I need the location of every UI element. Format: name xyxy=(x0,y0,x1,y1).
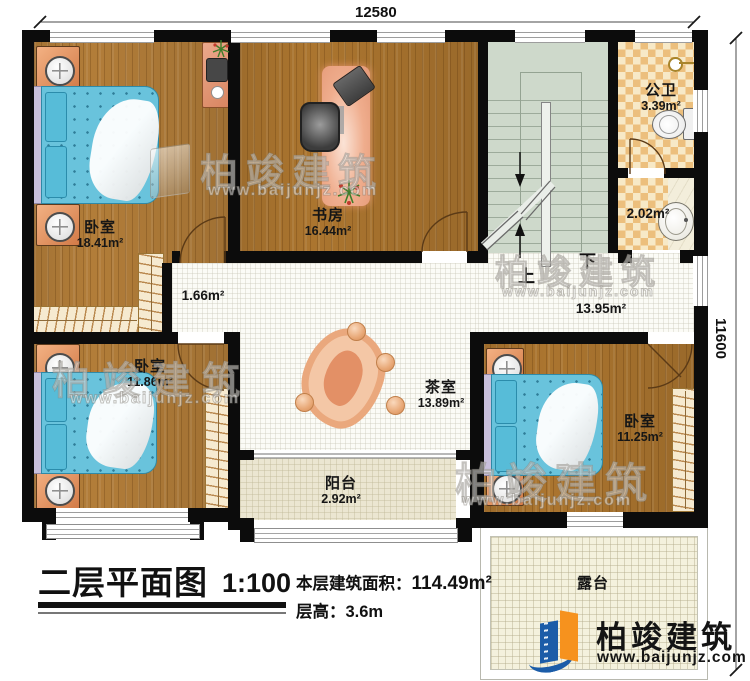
wall xyxy=(470,332,484,528)
wall xyxy=(694,332,708,528)
pouf xyxy=(347,322,366,341)
watermark-logo-icon xyxy=(150,143,190,199)
room-label-bedroom-tl: 卧室 18.41m² xyxy=(60,219,140,251)
wall xyxy=(22,30,34,522)
pillow xyxy=(45,424,67,470)
title-rule xyxy=(38,602,286,608)
wall xyxy=(228,332,240,530)
toilet-icon xyxy=(652,110,686,139)
faucet-dot xyxy=(684,218,688,222)
room-label-public-bath: 公卫 3.39m² xyxy=(622,82,700,114)
room-area: 13.95m² xyxy=(568,301,634,317)
bay-window xyxy=(46,524,200,539)
pillow xyxy=(45,378,67,422)
lamp-icon xyxy=(45,476,75,506)
room-label-study: 书房 16.44m² xyxy=(288,207,368,239)
paper-holder-icon xyxy=(668,57,683,72)
wall xyxy=(478,30,488,263)
room-name: 阳台 xyxy=(301,475,381,492)
room-area: 11.25m² xyxy=(600,430,680,444)
rug-layer xyxy=(318,346,368,410)
room-name: 露台 xyxy=(553,575,633,592)
wall xyxy=(664,168,694,178)
room-label-bedroom-br: 卧室 11.25m² xyxy=(600,413,680,445)
stair-flight-outline xyxy=(520,72,582,252)
room-area: 1.66m² xyxy=(172,288,234,304)
room-area: 2.02m² xyxy=(616,206,680,222)
pillow xyxy=(45,146,67,198)
room-name: 书房 xyxy=(288,207,368,224)
room-name: 公卫 xyxy=(622,82,700,99)
wall xyxy=(470,332,648,344)
wardrobe xyxy=(138,253,164,334)
window xyxy=(377,28,445,43)
floor-height-row: 层高：3.6m xyxy=(296,598,383,622)
window xyxy=(567,512,623,528)
rug-layer xyxy=(350,378,351,382)
floor-plan-sheet: 卧室 18.41m² 书房 16.44m² 公卫 3.39m² 2.02m² 1… xyxy=(0,0,750,681)
room-area: 3.39m² xyxy=(622,99,700,113)
room-label-tea-room: 茶室 13.89m² xyxy=(402,379,480,411)
room-label-terrace: 露台 xyxy=(553,575,633,592)
pouf xyxy=(295,393,314,412)
floor-area-row: 本层建筑面积：114.49m² xyxy=(296,570,492,595)
nightstand xyxy=(36,468,80,510)
wall xyxy=(456,450,482,460)
sheet-title: 二层平面图 xyxy=(38,556,208,604)
dimension-right: 11600 xyxy=(712,318,729,359)
floor-area-label: 本层建筑面积： xyxy=(296,575,412,593)
window xyxy=(515,28,585,43)
logo-icon xyxy=(560,610,578,661)
sheet-scale: 1:100 xyxy=(222,568,291,599)
room-label-wash-area: 2.02m² xyxy=(616,206,680,222)
pillow xyxy=(495,426,517,472)
window xyxy=(693,256,708,306)
room-label-bedroom-bl: 卧室 11.86m² xyxy=(110,358,190,390)
room-name: 卧室 xyxy=(600,413,680,430)
window xyxy=(56,508,188,522)
wall xyxy=(22,332,178,344)
stairs-up-label: 上 xyxy=(518,262,535,287)
room-area: 11.86m² xyxy=(110,375,190,389)
wall xyxy=(456,518,472,542)
pouf xyxy=(376,353,395,372)
tv-icon xyxy=(206,58,228,82)
logo-icon xyxy=(540,620,558,663)
lamp-icon xyxy=(45,56,75,86)
room-area: 16.44m² xyxy=(288,224,368,238)
room-name: 卧室 xyxy=(110,358,190,375)
wall xyxy=(240,450,254,460)
dimension-top: 12580 xyxy=(355,4,397,21)
office-chair xyxy=(300,102,340,152)
room-name: 茶室 xyxy=(402,379,480,396)
cup-icon xyxy=(211,86,224,99)
wall xyxy=(172,251,180,263)
stair-handrail xyxy=(541,102,551,267)
room-label-hallway: 13.95m² xyxy=(568,301,634,317)
room-area: 2.92m² xyxy=(301,492,381,506)
room-label-balcony: 阳台 2.92m² xyxy=(301,475,381,507)
wall xyxy=(224,251,240,263)
room-label-corridor: 1.66m² xyxy=(172,288,234,304)
wall xyxy=(618,168,628,178)
brand-website: www.baijunjz.com xyxy=(597,649,747,667)
pillow xyxy=(495,380,517,424)
wall xyxy=(240,518,254,542)
stairs-down-label: 下 xyxy=(579,247,596,272)
room-area: 18.41m² xyxy=(60,236,140,250)
window xyxy=(231,28,330,43)
window xyxy=(635,28,692,43)
floor-area-value: 114.49m² xyxy=(412,573,492,594)
wardrobe xyxy=(205,388,230,510)
room-name: 卧室 xyxy=(60,219,140,236)
dim-tick xyxy=(730,32,742,676)
wall xyxy=(228,30,240,263)
title-rule xyxy=(38,612,286,614)
room-area: 13.89m² xyxy=(402,396,480,410)
wardrobe xyxy=(25,306,140,334)
wall xyxy=(467,251,478,263)
wall xyxy=(240,251,422,263)
window xyxy=(50,28,154,43)
pillow xyxy=(45,92,67,142)
balcony-railing xyxy=(254,528,458,543)
wall xyxy=(618,250,632,263)
lamp-icon xyxy=(492,474,522,504)
